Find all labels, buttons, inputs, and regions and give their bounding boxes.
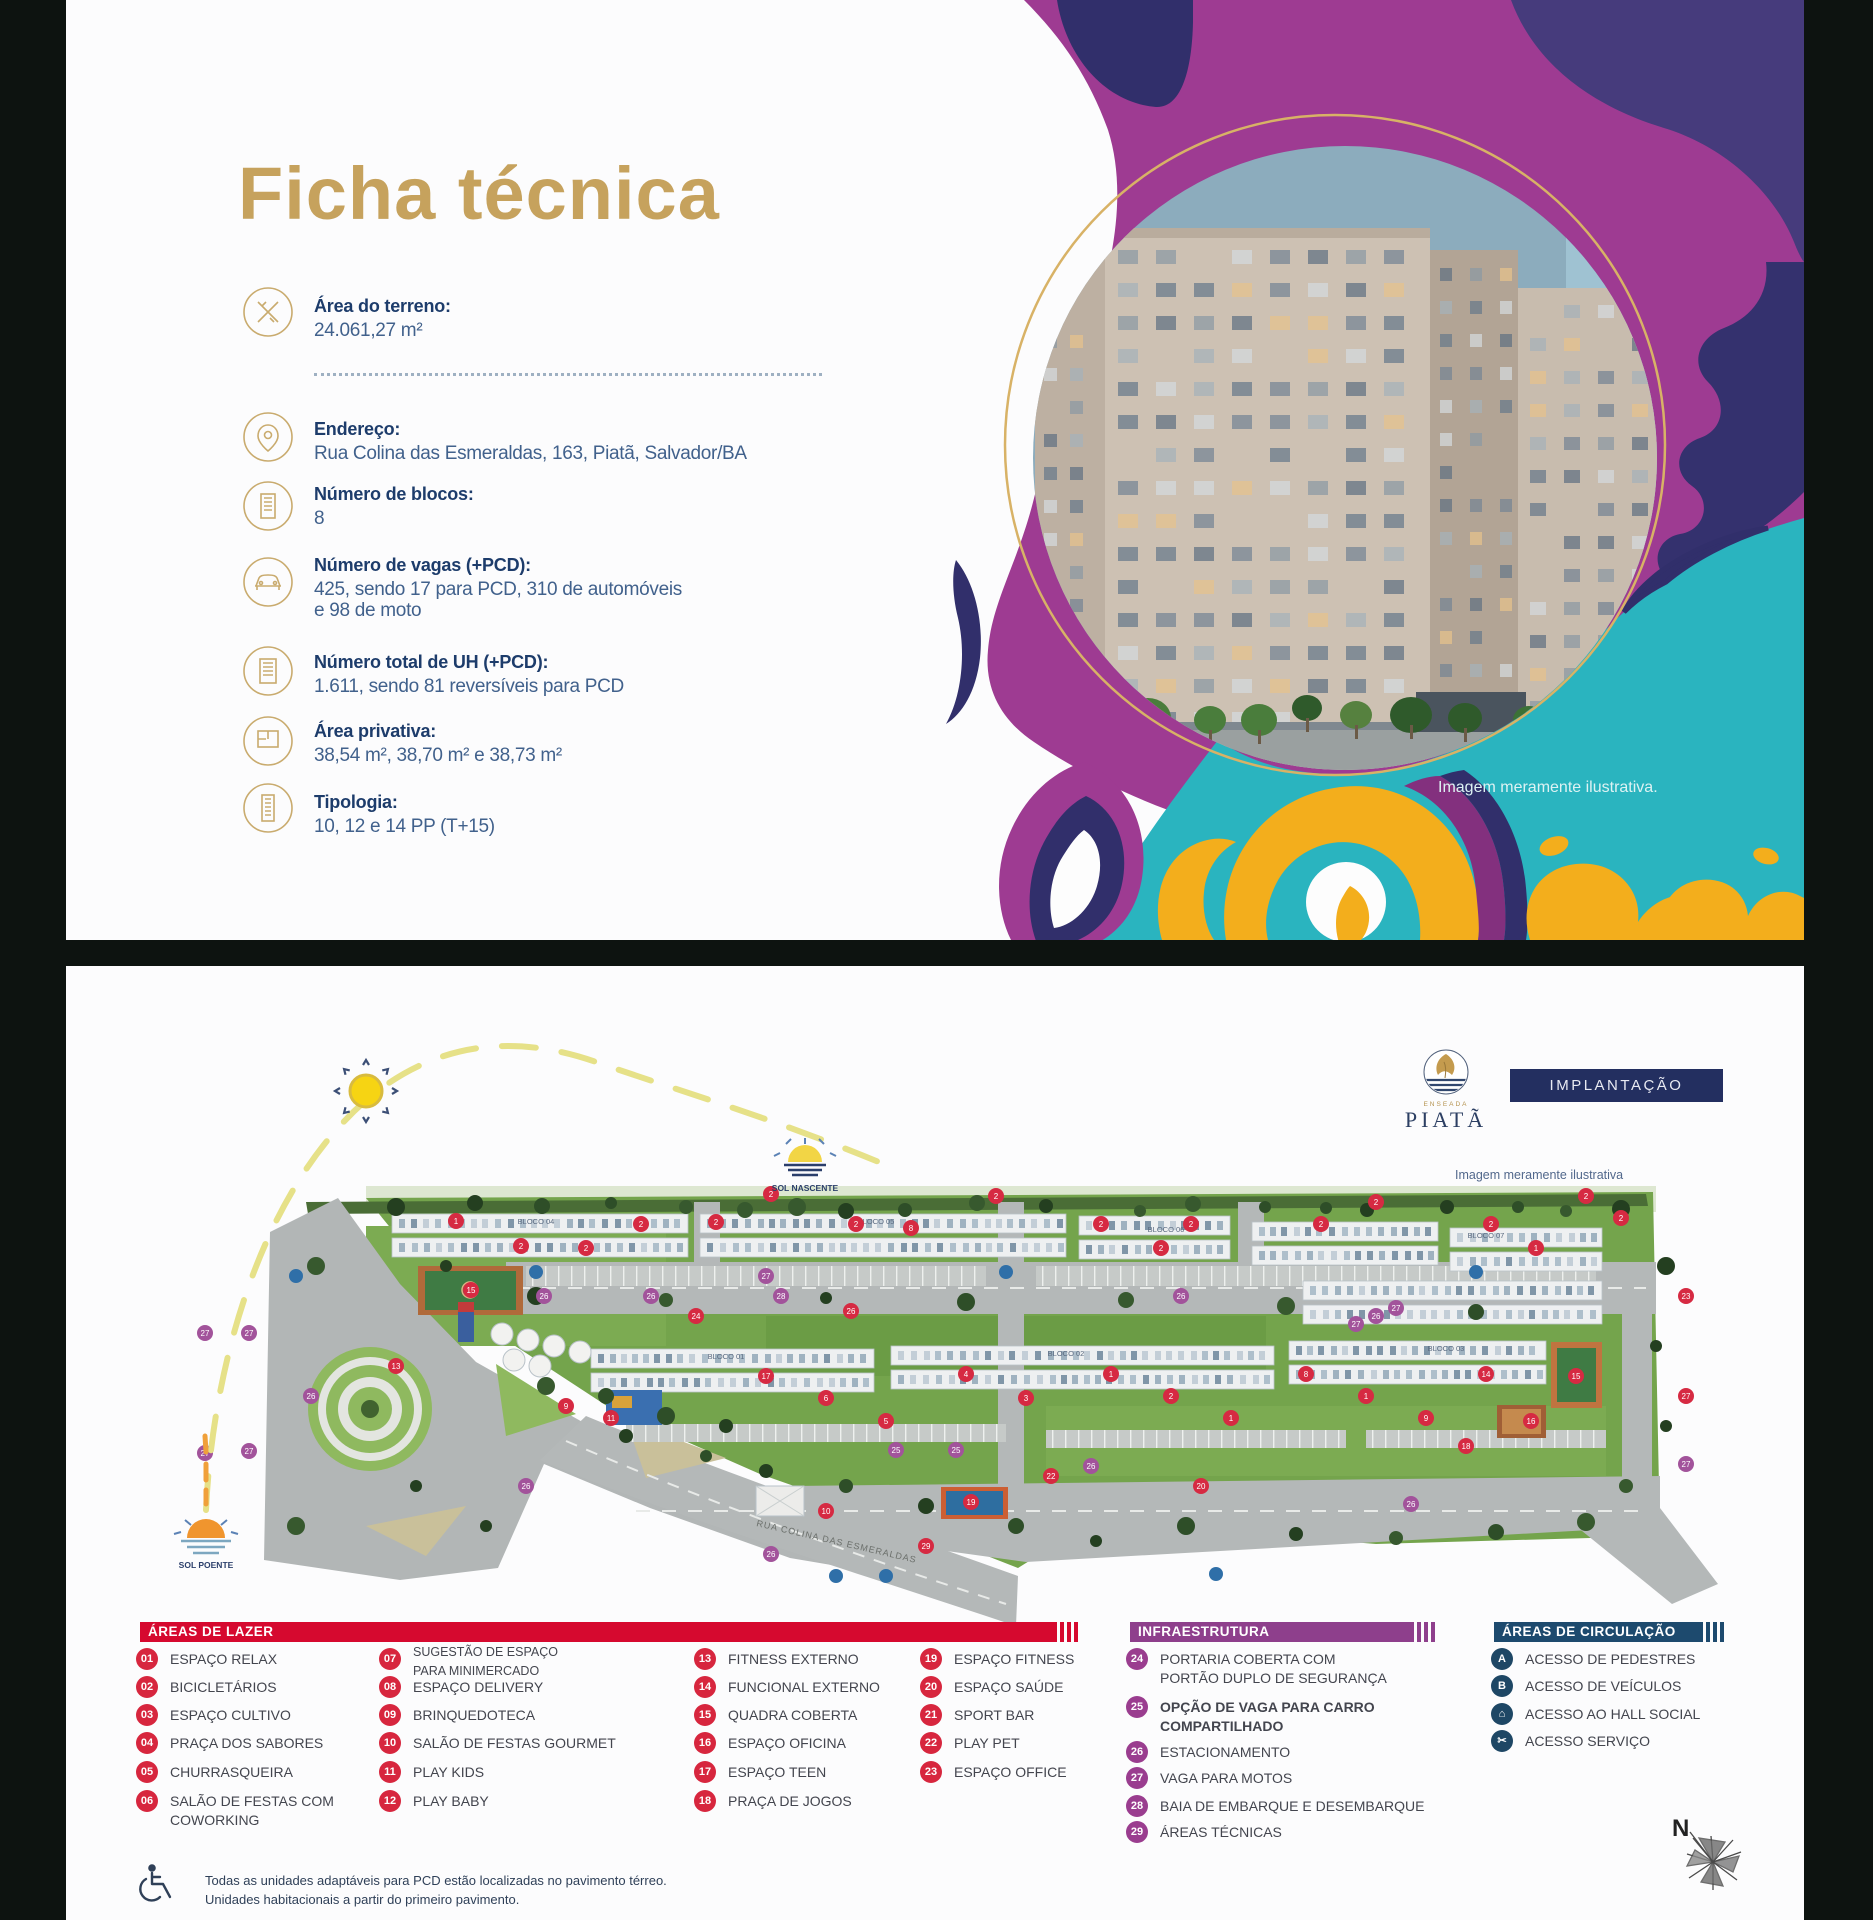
svg-text:20: 20 bbox=[1197, 1482, 1206, 1491]
svg-text:15: 15 bbox=[1572, 1372, 1581, 1381]
svg-text:28: 28 bbox=[777, 1292, 786, 1301]
svg-text:16: 16 bbox=[1527, 1417, 1536, 1426]
svg-text:8: 8 bbox=[1304, 1370, 1309, 1379]
svg-text:2: 2 bbox=[1619, 1214, 1624, 1223]
svg-text:26: 26 bbox=[1087, 1462, 1096, 1471]
svg-text:22: 22 bbox=[1047, 1472, 1056, 1481]
svg-text:23: 23 bbox=[1682, 1292, 1691, 1301]
svg-text:2: 2 bbox=[714, 1218, 719, 1227]
svg-text:13: 13 bbox=[392, 1362, 401, 1371]
svg-text:2: 2 bbox=[1584, 1192, 1589, 1201]
svg-text:2: 2 bbox=[519, 1242, 524, 1251]
svg-text:2: 2 bbox=[639, 1220, 644, 1229]
svg-text:15: 15 bbox=[467, 1286, 476, 1295]
svg-text:9: 9 bbox=[1424, 1414, 1429, 1423]
svg-text:BLOCO 03: BLOCO 03 bbox=[1428, 1344, 1465, 1353]
svg-text:2: 2 bbox=[1099, 1220, 1104, 1229]
svg-text:27: 27 bbox=[201, 1329, 210, 1338]
svg-text:2: 2 bbox=[1374, 1198, 1379, 1207]
svg-text:19: 19 bbox=[967, 1498, 976, 1507]
svg-text:27: 27 bbox=[1682, 1392, 1691, 1401]
svg-text:26: 26 bbox=[767, 1550, 776, 1559]
svg-text:26: 26 bbox=[647, 1292, 656, 1301]
svg-text:BLOCO 01: BLOCO 01 bbox=[708, 1352, 745, 1361]
svg-text:2: 2 bbox=[1189, 1220, 1194, 1229]
svg-text:1: 1 bbox=[1109, 1370, 1114, 1379]
svg-text:26: 26 bbox=[1407, 1500, 1416, 1509]
svg-text:BLOCO 07: BLOCO 07 bbox=[1468, 1231, 1505, 1240]
svg-text:2: 2 bbox=[994, 1192, 999, 1201]
svg-text:SOL NASCENTE: SOL NASCENTE bbox=[772, 1183, 839, 1193]
svg-text:8: 8 bbox=[909, 1224, 914, 1233]
svg-text:27: 27 bbox=[1352, 1320, 1361, 1329]
svg-text:25: 25 bbox=[892, 1446, 901, 1455]
svg-text:2: 2 bbox=[584, 1244, 589, 1253]
svg-text:PIATÃ: PIATÃ bbox=[1405, 1107, 1487, 1132]
svg-text:3: 3 bbox=[1024, 1394, 1029, 1403]
svg-text:1: 1 bbox=[454, 1217, 459, 1226]
svg-text:2: 2 bbox=[1489, 1220, 1494, 1229]
svg-text:4: 4 bbox=[964, 1370, 969, 1379]
svg-text:27: 27 bbox=[245, 1447, 254, 1456]
svg-text:26: 26 bbox=[540, 1292, 549, 1301]
svg-text:10: 10 bbox=[822, 1507, 831, 1516]
svg-text:14: 14 bbox=[1482, 1370, 1491, 1379]
svg-text:N: N bbox=[1672, 1815, 1689, 1842]
svg-text:18: 18 bbox=[1462, 1442, 1471, 1451]
svg-text:26: 26 bbox=[847, 1307, 856, 1316]
svg-text:2: 2 bbox=[854, 1220, 859, 1229]
svg-text:BLOCO 02: BLOCO 02 bbox=[1048, 1349, 1085, 1358]
svg-text:27: 27 bbox=[1392, 1304, 1401, 1313]
svg-text:2: 2 bbox=[1159, 1244, 1164, 1253]
svg-text:29: 29 bbox=[922, 1542, 931, 1551]
svg-text:26: 26 bbox=[1372, 1312, 1381, 1321]
svg-text:27: 27 bbox=[245, 1329, 254, 1338]
svg-text:26: 26 bbox=[307, 1392, 316, 1401]
svg-text:26: 26 bbox=[522, 1482, 531, 1491]
svg-text:11: 11 bbox=[607, 1414, 616, 1423]
svg-text:2: 2 bbox=[1319, 1220, 1324, 1229]
svg-text:27: 27 bbox=[1682, 1460, 1691, 1469]
svg-text:SOL POENTE: SOL POENTE bbox=[179, 1560, 234, 1570]
svg-text:27: 27 bbox=[762, 1272, 771, 1281]
svg-text:BLOCO 06: BLOCO 06 bbox=[1148, 1225, 1185, 1234]
svg-text:17: 17 bbox=[762, 1372, 771, 1381]
svg-text:5: 5 bbox=[884, 1417, 889, 1426]
svg-text:26: 26 bbox=[1177, 1292, 1186, 1301]
svg-text:Imagem meramente ilustrativa.: Imagem meramente ilustrativa. bbox=[1438, 779, 1658, 796]
svg-text:1: 1 bbox=[1229, 1414, 1234, 1423]
svg-text:9: 9 bbox=[564, 1402, 569, 1411]
svg-text:1: 1 bbox=[1364, 1392, 1369, 1401]
svg-text:24: 24 bbox=[692, 1312, 701, 1321]
svg-text:BLOCO 04: BLOCO 04 bbox=[518, 1217, 555, 1226]
svg-text:25: 25 bbox=[952, 1446, 961, 1455]
svg-text:2: 2 bbox=[1169, 1392, 1174, 1401]
svg-text:1: 1 bbox=[1534, 1244, 1539, 1253]
svg-text:6: 6 bbox=[824, 1394, 829, 1403]
